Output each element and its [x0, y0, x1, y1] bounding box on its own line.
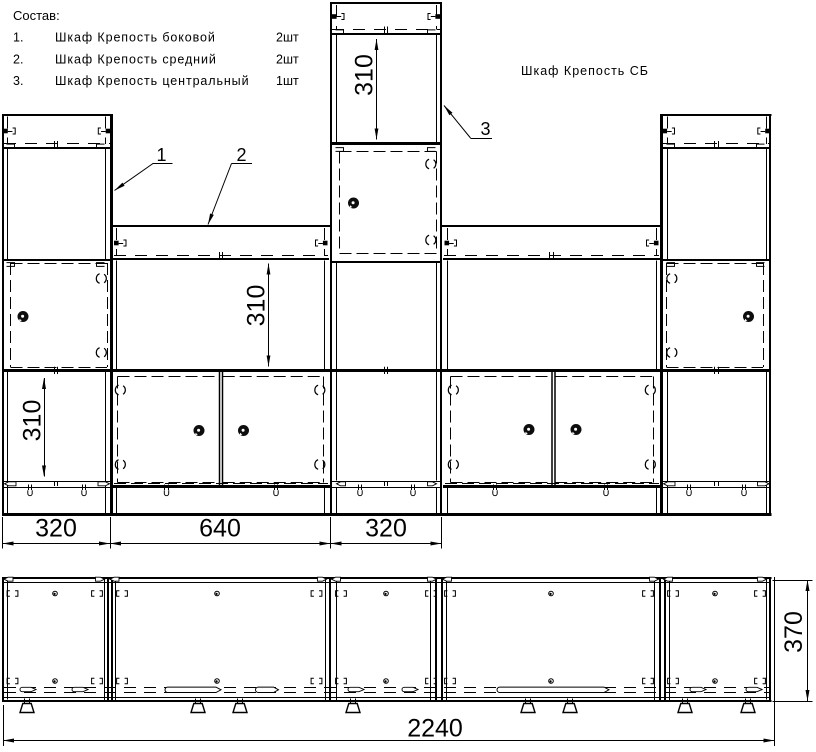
svg-text:2шт: 2шт [276, 53, 299, 67]
svg-text:640: 640 [199, 515, 241, 543]
svg-text:3.: 3. [13, 74, 23, 88]
svg-text:1: 1 [156, 145, 166, 165]
svg-text:320: 320 [35, 515, 77, 543]
svg-text:Состав:: Состав: [13, 8, 60, 23]
svg-text:2240: 2240 [407, 715, 463, 743]
svg-text:Шкаф Крепость центральный: Шкаф Крепость центральный [55, 74, 249, 88]
svg-text:310: 310 [351, 54, 379, 96]
svg-text:310: 310 [19, 400, 47, 442]
svg-text:2: 2 [236, 145, 246, 165]
svg-text:Шкаф Крепость СБ: Шкаф Крепость СБ [521, 64, 649, 78]
svg-text:310: 310 [243, 285, 271, 327]
svg-text:Шкаф Крепость боковой: Шкаф Крепость боковой [55, 31, 216, 45]
svg-text:320: 320 [365, 515, 407, 543]
svg-text:1.: 1. [13, 31, 23, 45]
svg-text:2.: 2. [13, 53, 23, 67]
svg-text:2шт: 2шт [276, 31, 299, 45]
svg-text:370: 370 [780, 611, 808, 653]
svg-text:1шт: 1шт [276, 74, 299, 88]
svg-text:Шкаф Крепость средний: Шкаф Крепость средний [55, 53, 217, 67]
svg-text:3: 3 [480, 119, 490, 139]
